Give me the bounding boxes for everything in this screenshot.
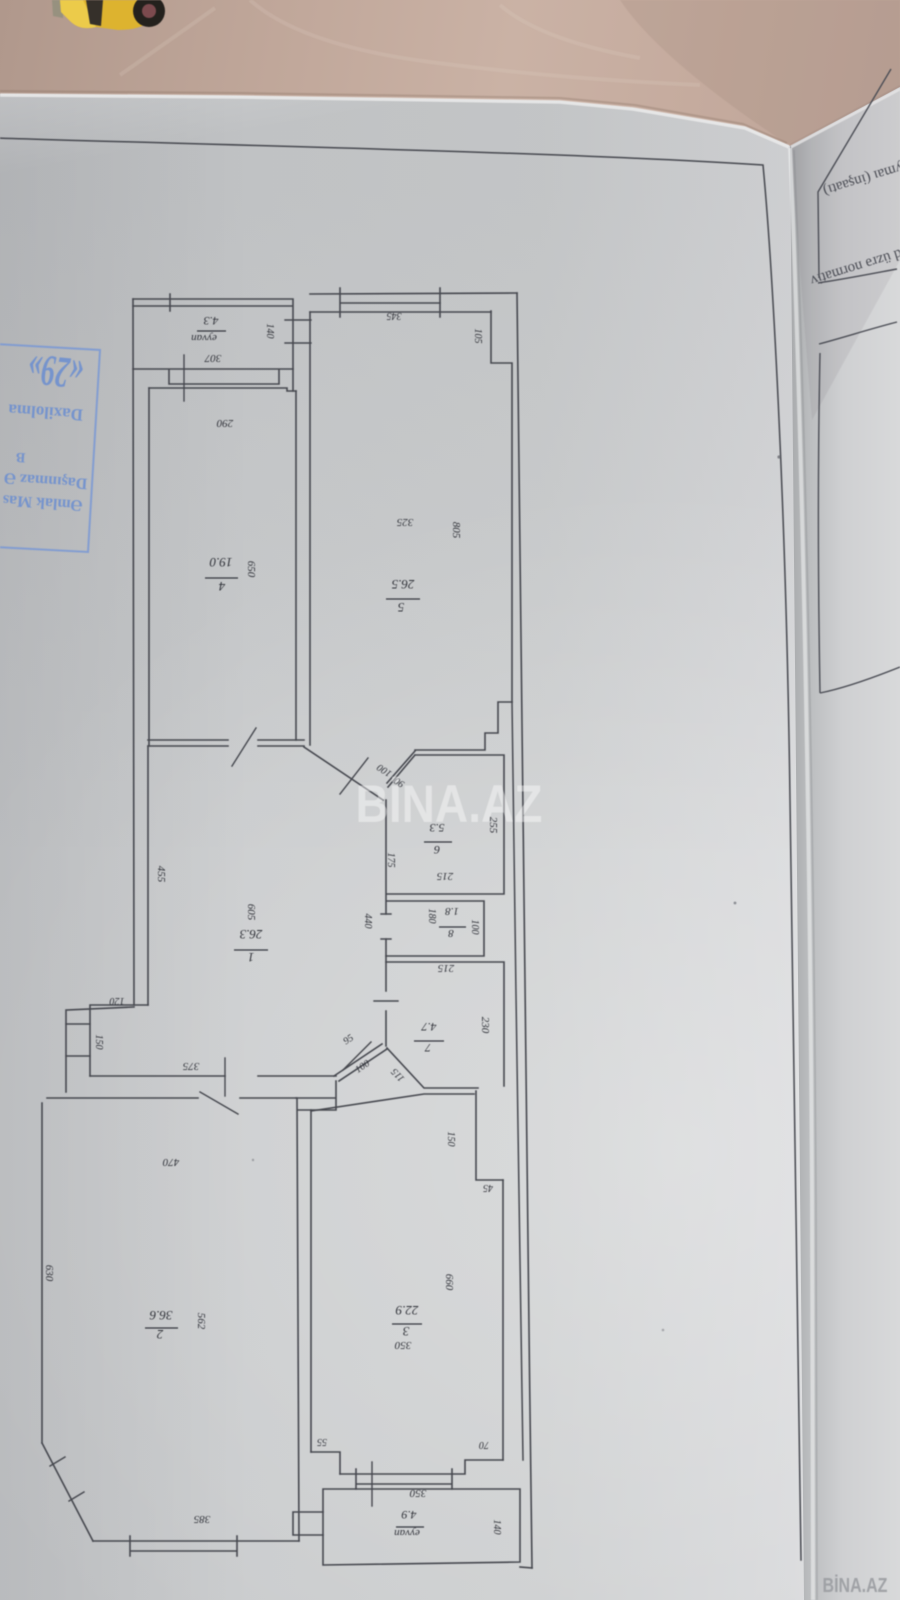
svg-text:375: 375 <box>182 1060 200 1072</box>
svg-text:120: 120 <box>110 995 125 1006</box>
svg-text:36.6: 36.6 <box>149 1308 173 1323</box>
svg-text:230: 230 <box>479 1017 491 1034</box>
svg-text:660: 660 <box>443 1274 455 1291</box>
svg-text:2: 2 <box>156 1327 163 1342</box>
svg-text:Əmlak Mas: Əmlak Mas <box>2 491 83 514</box>
svg-text:BİNA.AZ: BİNA.AZ <box>356 774 543 834</box>
svg-text:105: 105 <box>472 329 483 344</box>
svg-text:470: 470 <box>162 1156 179 1168</box>
svg-text:4.7: 4.7 <box>421 1020 437 1034</box>
svg-text:455: 455 <box>155 866 167 883</box>
svg-text:7: 7 <box>424 1041 431 1055</box>
svg-text:eyvan: eyvan <box>394 1527 420 1539</box>
svg-text:325: 325 <box>396 516 414 528</box>
svg-text:3: 3 <box>402 1324 410 1339</box>
svg-text:180: 180 <box>426 909 437 924</box>
svg-text:150: 150 <box>445 1132 456 1147</box>
svg-text:26.3: 26.3 <box>239 927 262 942</box>
svg-text:140: 140 <box>264 324 275 339</box>
svg-text:307: 307 <box>204 352 222 364</box>
svg-text:290: 290 <box>216 417 233 429</box>
svg-text:805: 805 <box>450 522 462 539</box>
svg-text:1.8: 1.8 <box>445 905 459 917</box>
svg-text:100: 100 <box>469 920 480 935</box>
svg-text:215: 215 <box>437 962 454 974</box>
svg-text:6: 6 <box>434 843 440 857</box>
svg-text:8: 8 <box>448 927 454 939</box>
svg-text:5: 5 <box>397 600 404 615</box>
svg-text:eyvan: eyvan <box>191 332 217 344</box>
svg-text:BİNA.AZ: BİNA.AZ <box>823 1574 888 1596</box>
svg-text:215: 215 <box>436 870 453 882</box>
svg-text:Daşınmaz Ə: Daşınmaz Ə <box>3 469 88 492</box>
svg-text:19.0: 19.0 <box>209 555 232 570</box>
svg-text:140: 140 <box>491 1520 502 1535</box>
svg-text:440: 440 <box>362 914 373 929</box>
svg-text:4.3: 4.3 <box>204 314 219 328</box>
svg-text:385: 385 <box>193 1513 211 1525</box>
svg-text:4: 4 <box>218 579 225 594</box>
svg-text:175: 175 <box>385 853 396 868</box>
svg-text:95: 95 <box>341 1033 355 1048</box>
svg-text:4.9: 4.9 <box>402 1508 417 1522</box>
svg-text:26.5: 26.5 <box>391 577 414 592</box>
svg-text:345: 345 <box>387 310 403 321</box>
svg-text:Daxilolma: Daxilolma <box>7 400 83 424</box>
svg-text:70: 70 <box>479 1439 489 1450</box>
svg-text:605: 605 <box>245 904 257 921</box>
svg-text:55: 55 <box>317 1436 327 1447</box>
svg-text:22.9: 22.9 <box>395 1303 418 1318</box>
svg-text:350: 350 <box>409 1487 427 1499</box>
svg-text:«29»: «29» <box>25 345 86 400</box>
svg-text:150: 150 <box>93 1035 104 1050</box>
svg-text:630: 630 <box>43 1265 55 1282</box>
svg-text:45: 45 <box>483 1182 493 1193</box>
svg-text:B: B <box>16 449 26 465</box>
svg-text:650: 650 <box>245 561 257 578</box>
svg-text:562: 562 <box>195 1313 207 1330</box>
svg-text:1: 1 <box>248 950 255 965</box>
svg-text:115: 115 <box>389 1066 407 1084</box>
svg-text:350: 350 <box>394 1339 412 1351</box>
